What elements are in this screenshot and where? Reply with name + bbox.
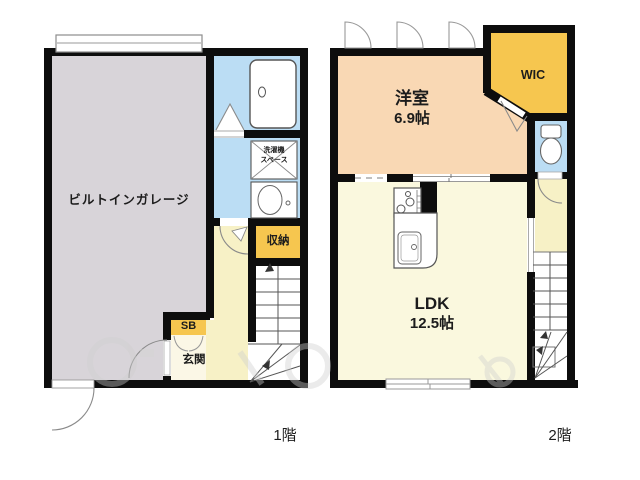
corridor-2f bbox=[533, 179, 567, 252]
casement-window-icons bbox=[345, 22, 475, 48]
shoebox-box bbox=[171, 320, 206, 335]
floor1-plan bbox=[44, 35, 308, 430]
hall-1f-strip bbox=[206, 320, 214, 380]
floorplan-canvas bbox=[0, 0, 640, 480]
open-wall-dashed bbox=[355, 174, 387, 182]
sliding-door bbox=[413, 174, 490, 182]
entrance-door-arc bbox=[52, 380, 94, 430]
vanity-sink-icon bbox=[251, 182, 297, 218]
floorplan: ビルトインガレージ 洗濯機 スペース 収納 SB 玄関 洋室 6.9帖 WIC … bbox=[0, 0, 640, 480]
garage-shutter bbox=[56, 35, 202, 52]
laundry-space-box bbox=[251, 141, 297, 179]
bedroom-room bbox=[338, 56, 483, 174]
toilet-icon bbox=[541, 125, 562, 164]
ldk-window bbox=[386, 379, 470, 389]
bathtub-icon bbox=[250, 60, 296, 128]
ldk-opening bbox=[527, 218, 535, 272]
kitchen-sink-counter bbox=[394, 213, 437, 268]
floor2-plan bbox=[330, 22, 578, 389]
storage-room bbox=[256, 226, 300, 258]
entrance-room bbox=[171, 335, 206, 380]
